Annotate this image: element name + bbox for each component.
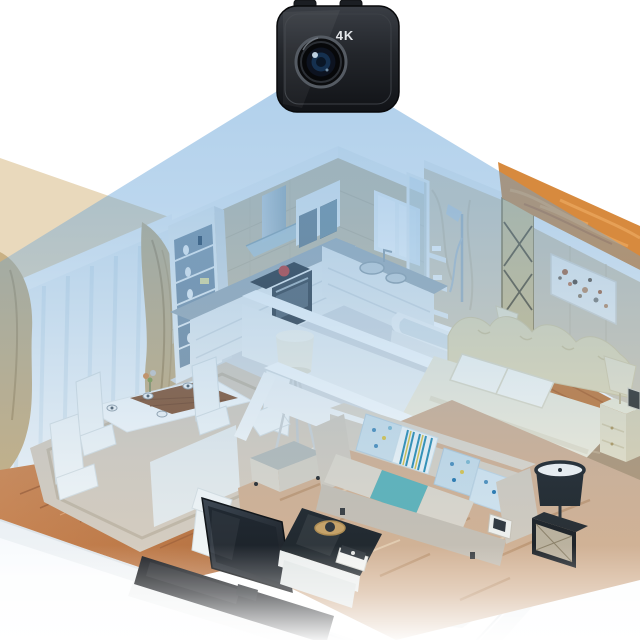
product-scene: 4K <box>0 0 640 640</box>
camera-lens <box>296 37 346 87</box>
lens-highlight <box>312 52 318 58</box>
mini-camera: 4K <box>277 0 399 112</box>
camera-4k-label: 4K <box>336 28 355 43</box>
camera-view-beam <box>0 64 640 640</box>
apartment-illustration: 4K <box>0 0 640 640</box>
